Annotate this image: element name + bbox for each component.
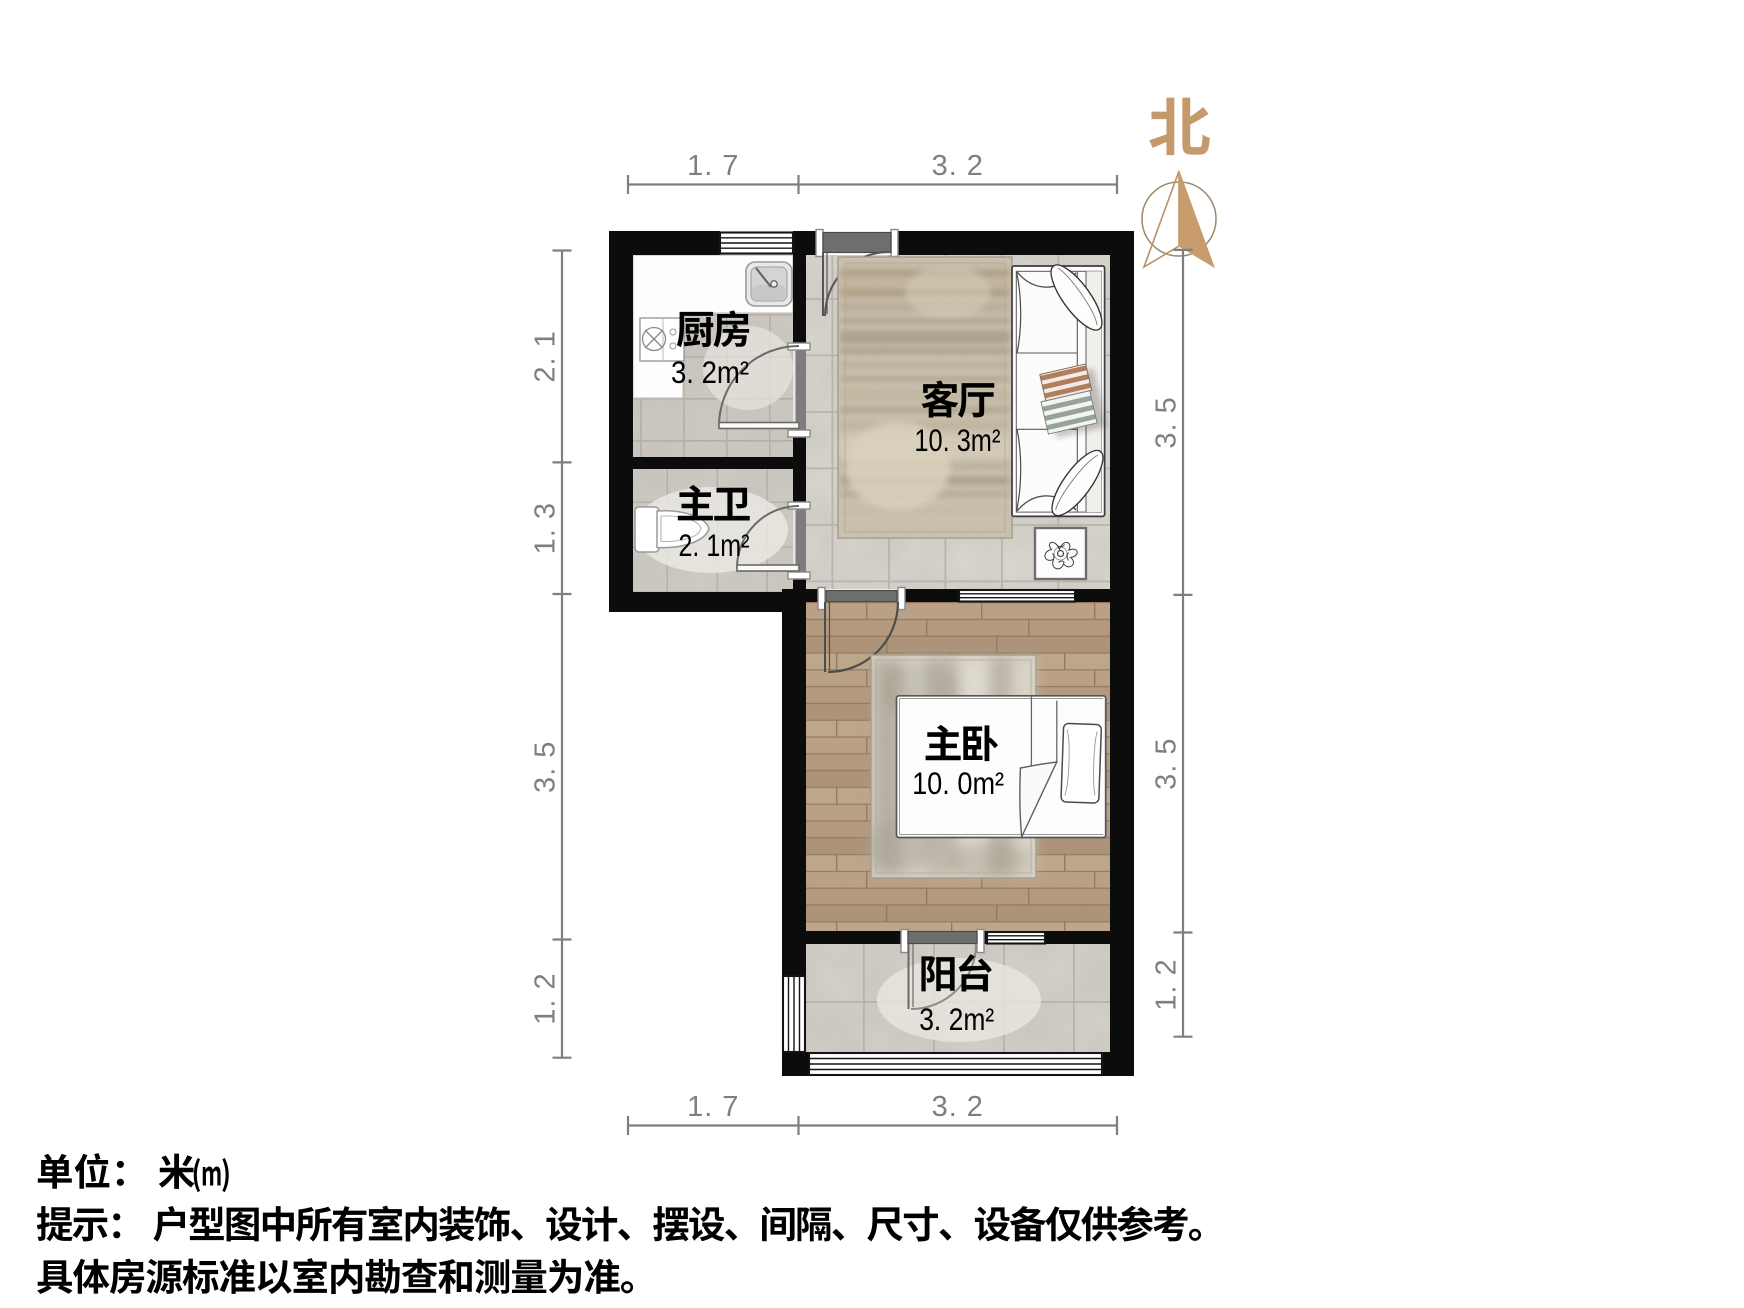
svg-text:1. 7: 1. 7 (687, 150, 739, 182)
svg-text:2. 1: 2. 1 (530, 330, 562, 382)
svg-text:1. 2: 1. 2 (530, 972, 562, 1024)
svg-text:3. 5: 3. 5 (1151, 396, 1183, 448)
svg-text:3. 2m²: 3. 2m² (671, 354, 749, 390)
svg-text:3. 2m²: 3. 2m² (919, 1001, 994, 1037)
svg-text:3. 5: 3. 5 (1151, 738, 1183, 790)
svg-text:10. 0m²: 10. 0m² (912, 765, 1004, 801)
svg-text:1. 2: 1. 2 (1151, 958, 1183, 1010)
svg-text:2. 1m²: 2. 1m² (679, 527, 750, 563)
svg-text:10. 3m²: 10. 3m² (914, 422, 1000, 458)
svg-text:1. 7: 1. 7 (687, 1091, 739, 1123)
svg-text:3. 2: 3. 2 (932, 1091, 984, 1123)
svg-text:3. 5: 3. 5 (530, 741, 562, 793)
svg-text:1. 3: 1. 3 (530, 502, 562, 554)
svg-text:3. 2: 3. 2 (932, 150, 984, 182)
